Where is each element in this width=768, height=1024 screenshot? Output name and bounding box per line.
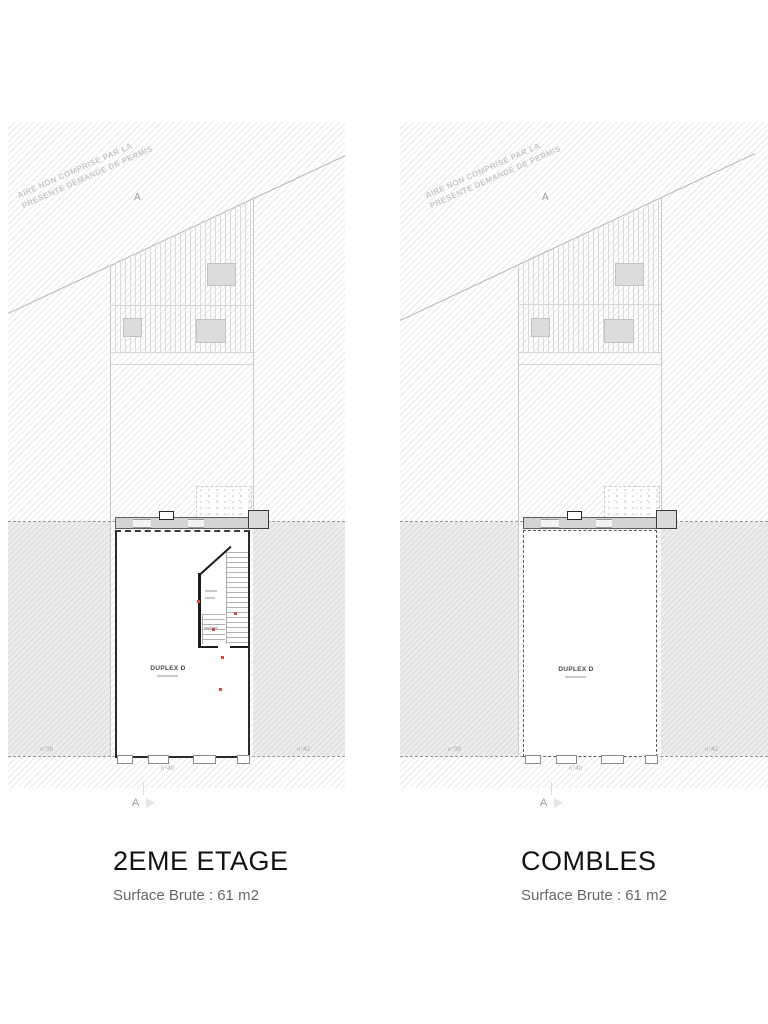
plan-subtitle: Surface Brute : 61 m2 (521, 887, 667, 904)
plan-subtitle: Surface Brute : 61 m2 (113, 887, 259, 904)
section-line-tick (551, 782, 552, 795)
plan-title: 2EME ETAGE (113, 846, 289, 877)
section-line-tick (143, 782, 144, 795)
chimney-notch (567, 511, 582, 520)
red-annotation (212, 628, 215, 631)
section-marker-a-bottom: A (132, 797, 139, 809)
window-sill (148, 755, 169, 764)
wall-pilaster (248, 510, 269, 529)
window-sill (525, 755, 541, 764)
neighbor-parcel-left (8, 522, 110, 756)
gravel-terrace (196, 486, 252, 518)
wall-pilaster (656, 510, 677, 529)
unit-label: DUPLEX D (138, 665, 198, 672)
plan-sheet: AIRE NON COMPRISE PAR LA PRESENTE DEMAND… (0, 0, 768, 1024)
roof-break-line (110, 352, 253, 353)
roof-break-line (518, 364, 661, 365)
window-sill (193, 755, 216, 764)
neighbor-number-right: n°42 (297, 747, 310, 753)
stair-treads (226, 552, 248, 644)
unit-area-placeholder (157, 675, 178, 677)
roof-break-line (518, 304, 661, 305)
plan-title: COMBLES (521, 846, 657, 877)
roof-break-line (518, 352, 661, 353)
stair-wall-left (198, 573, 201, 648)
stair-wall-bottom (198, 646, 218, 648)
section-arrow-icon (554, 798, 563, 808)
window-sill (645, 755, 658, 764)
window-sill (556, 755, 577, 764)
stair-label-placeholder (205, 597, 215, 599)
window-sill (601, 755, 624, 764)
red-annotation (234, 612, 237, 615)
stair-label-placeholder (204, 627, 218, 629)
gravel-terrace (604, 486, 660, 518)
skylight (207, 263, 236, 286)
roof-break-line (110, 305, 253, 306)
skylight (531, 318, 550, 337)
facade-window-opening (133, 519, 151, 528)
skylight (123, 318, 142, 337)
stair-label-placeholder (205, 590, 217, 592)
red-annotation (221, 656, 224, 659)
section-arrow-icon (146, 798, 155, 808)
red-annotation (219, 688, 222, 691)
red-annotation (197, 600, 200, 603)
section-marker-a-bottom: A (540, 797, 547, 809)
facade-window-opening (541, 519, 559, 528)
section-marker-a-top: A (134, 192, 141, 203)
window-sill (117, 755, 133, 764)
skylight (604, 319, 634, 343)
skylight (615, 263, 644, 286)
stair-wall-bottom (230, 646, 248, 648)
unit-label: DUPLEX D (546, 666, 606, 673)
attic-room (523, 530, 657, 757)
skylight (196, 319, 226, 343)
neighbor-parcel-right (253, 522, 345, 756)
chimney-notch (159, 511, 174, 520)
facade-window-opening (596, 519, 612, 528)
window-sill (237, 755, 250, 764)
neighbor-number-left: n°38 (40, 747, 53, 753)
neighbor-number-right: n°42 (705, 747, 718, 753)
party-wall-line (110, 265, 111, 756)
roof-break-line (110, 364, 253, 365)
neighbor-parcel-right (661, 522, 768, 756)
section-marker-a-top: A (542, 192, 549, 203)
street-number: n°40 (569, 766, 582, 772)
neighbor-parcel-left (400, 522, 518, 756)
unit-area-placeholder (565, 676, 586, 678)
street-number: n°40 (161, 766, 174, 772)
facade-window-opening (188, 519, 204, 528)
party-wall-line (518, 268, 519, 756)
neighbor-number-left: n°38 (448, 747, 461, 753)
